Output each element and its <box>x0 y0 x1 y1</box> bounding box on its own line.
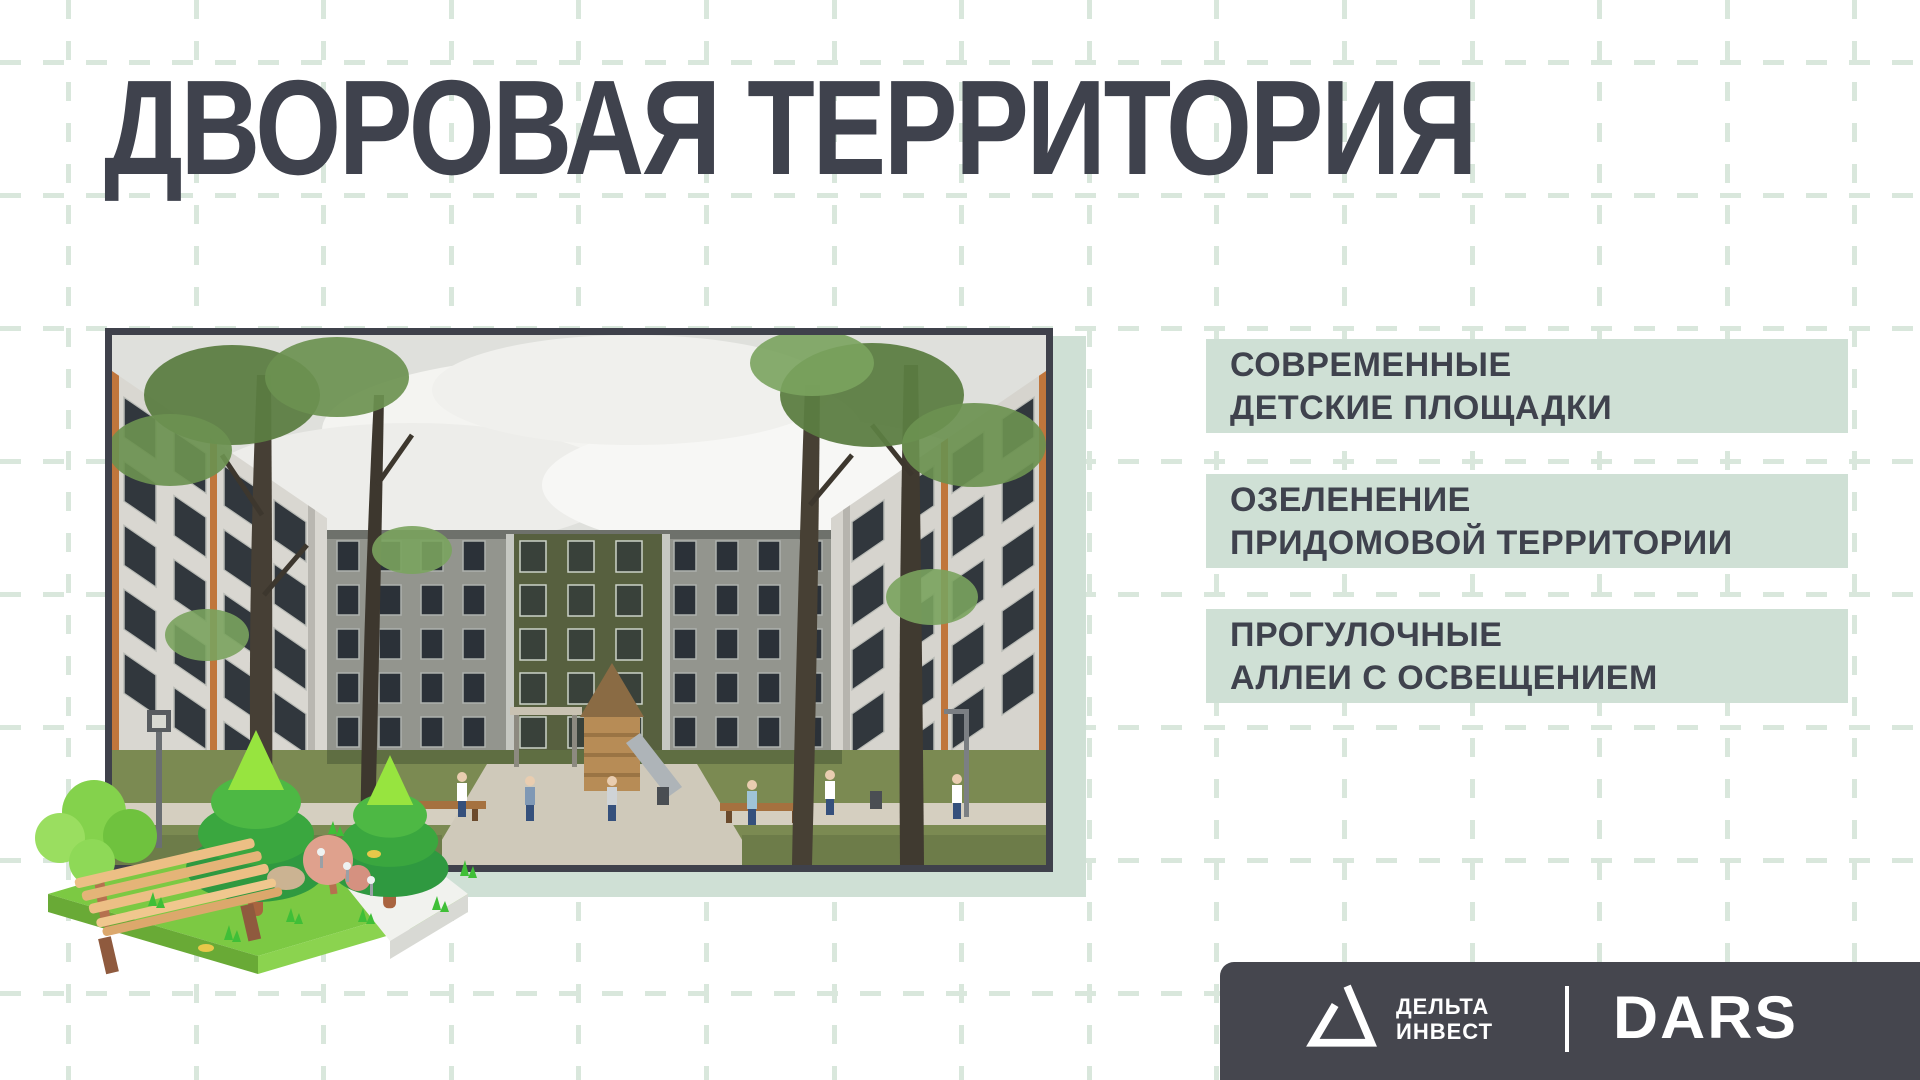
feature-line: СОВРЕМЕННЫЕ <box>1230 344 1848 387</box>
delta-triangle-icon <box>1306 984 1378 1050</box>
page-title: ДВОРОВАЯ ТЕРРИТОРИЯ <box>104 60 1475 195</box>
footer-brand-bar: ДЕЛЬТА ИНВЕСТ DARS <box>1220 962 1920 1080</box>
feature-line: ПРОГУЛОЧНЫЕ <box>1230 614 1848 657</box>
feature-line: ПРИДОМОВОЙ ТЕРРИТОРИИ <box>1230 522 1848 565</box>
dars-logo: DARS <box>1613 986 1798 1050</box>
footer-divider <box>1565 986 1569 1052</box>
feature-block-alleys: ПРОГУЛОЧНЫЕ АЛЛЕИ С ОСВЕЩЕНИЕМ <box>1206 609 1848 703</box>
feature-block-landscaping: ОЗЕЛЕНЕНИЕ ПРИДОМОВОЙ ТЕРРИТОРИИ <box>1206 474 1848 568</box>
feature-block-playgrounds: СОВРЕМЕННЫЕ ДЕТСКИЕ ПЛОЩАДКИ <box>1206 339 1848 433</box>
developer-name: ДЕЛЬТА ИНВЕСТ <box>1396 994 1493 1044</box>
developer-name-line1: ДЕЛЬТА <box>1396 994 1493 1019</box>
feature-line: АЛЛЕИ С ОСВЕЩЕНИЕМ <box>1230 657 1848 700</box>
feature-line: ОЗЕЛЕНЕНИЕ <box>1230 479 1848 522</box>
developer-name-line2: ИНВЕСТ <box>1396 1019 1493 1044</box>
park-bench-trees-3d-icon <box>28 726 498 978</box>
slide: ДВОРОВАЯ ТЕРРИТОРИЯ <box>0 0 1920 1080</box>
feature-line: ДЕТСКИЕ ПЛОЩАДКИ <box>1230 387 1848 430</box>
